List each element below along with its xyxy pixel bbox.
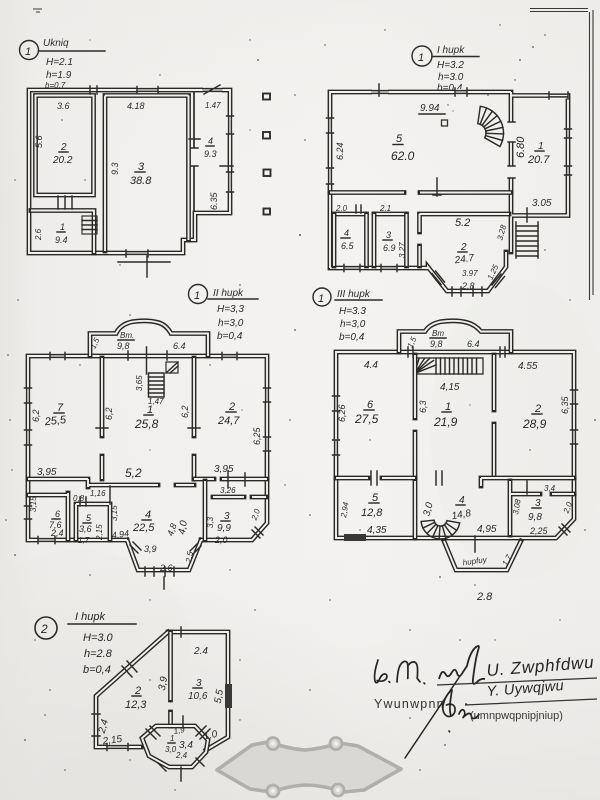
svg-text:b=0,4: b=0,4 bbox=[339, 332, 365, 343]
svg-text:6,2: 6,2 bbox=[104, 407, 114, 420]
svg-text:2,6: 2,6 bbox=[159, 563, 173, 573]
svg-text:4.55: 4.55 bbox=[518, 361, 538, 372]
svg-text:b=0,4: b=0,4 bbox=[217, 331, 243, 342]
svg-text:9.3: 9.3 bbox=[110, 162, 120, 175]
svg-text:2.1: 2.1 bbox=[379, 204, 391, 213]
svg-text:3,0: 3,0 bbox=[165, 745, 177, 754]
svg-text:H=3,3: H=3,3 bbox=[217, 304, 244, 315]
svg-text:62.0: 62.0 bbox=[391, 149, 415, 163]
svg-text:2,4: 2,4 bbox=[50, 528, 64, 538]
svg-text:2,25: 2,25 bbox=[529, 526, 549, 536]
svg-text:H=3.0: H=3.0 bbox=[83, 632, 114, 644]
svg-text:9,8: 9,8 bbox=[430, 339, 443, 349]
svg-text:6,2: 6,2 bbox=[180, 405, 190, 418]
svg-text:9.3: 9.3 bbox=[204, 149, 217, 159]
svg-text:2,4: 2,4 bbox=[175, 751, 188, 760]
svg-text:Bm: Bm bbox=[432, 329, 444, 338]
svg-text:6.80: 6.80 bbox=[515, 136, 527, 158]
svg-text:5: 5 bbox=[396, 133, 403, 145]
svg-text:9,8: 9,8 bbox=[528, 512, 542, 523]
svg-text:3.6: 3.6 bbox=[57, 101, 70, 111]
svg-text:6.35: 6.35 bbox=[209, 191, 219, 210]
svg-text:3,26: 3,26 bbox=[220, 486, 236, 495]
svg-text:(umnpwqpnipjniup): (umnpwqpnipjniup) bbox=[470, 710, 563, 722]
svg-text:7: 7 bbox=[57, 402, 64, 414]
svg-text:28,9: 28,9 bbox=[522, 417, 547, 431]
svg-text:2,15: 2,15 bbox=[95, 524, 104, 541]
svg-text:3,65: 3,65 bbox=[135, 375, 144, 391]
svg-text:I hupk: I hupk bbox=[75, 611, 105, 623]
svg-text:4: 4 bbox=[208, 136, 213, 146]
svg-text:4.18: 4.18 bbox=[127, 101, 145, 111]
svg-text:3.97: 3.97 bbox=[462, 269, 478, 278]
svg-text:b=0,4: b=0,4 bbox=[83, 664, 111, 676]
svg-text:6,25: 6,25 bbox=[252, 426, 262, 445]
svg-text:2: 2 bbox=[534, 403, 541, 415]
svg-text:h=1.9: h=1.9 bbox=[46, 70, 72, 81]
svg-text:III hupk: III hupk bbox=[337, 289, 371, 300]
svg-text:12,3: 12,3 bbox=[125, 699, 147, 711]
svg-text:3,15: 3,15 bbox=[29, 496, 38, 512]
svg-text:6.24: 6.24 bbox=[335, 142, 345, 160]
svg-text:H=2.1: H=2.1 bbox=[46, 57, 73, 68]
svg-text:38.8: 38.8 bbox=[130, 175, 152, 187]
svg-text:Ukniq: Ukniq bbox=[43, 38, 69, 49]
svg-text:1,7: 1,7 bbox=[78, 536, 90, 545]
svg-text:2: 2 bbox=[134, 685, 141, 697]
svg-text:2.0: 2.0 bbox=[335, 204, 348, 213]
svg-text:3.05: 3.05 bbox=[532, 198, 552, 209]
svg-text:1.47: 1.47 bbox=[205, 101, 221, 110]
svg-text:9.4: 9.4 bbox=[55, 235, 68, 245]
svg-text:0,8: 0,8 bbox=[73, 494, 85, 503]
svg-text:h=3,0: h=3,0 bbox=[340, 319, 366, 330]
svg-text:5: 5 bbox=[372, 492, 379, 504]
svg-text:2.4: 2.4 bbox=[193, 646, 208, 657]
svg-text:3,95: 3,95 bbox=[214, 464, 234, 475]
svg-text:10,6: 10,6 bbox=[188, 691, 208, 702]
svg-text:6: 6 bbox=[367, 399, 374, 411]
svg-text:5,2: 5,2 bbox=[125, 466, 142, 480]
svg-text:3: 3 bbox=[138, 161, 145, 173]
svg-text:22,5: 22,5 bbox=[132, 522, 155, 534]
svg-text:3,4: 3,4 bbox=[544, 484, 556, 493]
svg-text:1: 1 bbox=[60, 222, 65, 232]
svg-text:9.94: 9.94 bbox=[420, 103, 440, 114]
svg-text:3: 3 bbox=[386, 230, 391, 240]
svg-text:3,6: 3,6 bbox=[79, 524, 92, 534]
svg-text:2.6: 2.6 bbox=[34, 228, 43, 241]
svg-text:H=3.2: H=3.2 bbox=[437, 60, 464, 71]
svg-text:3,9: 3,9 bbox=[144, 544, 157, 554]
svg-text:1: 1 bbox=[25, 46, 31, 58]
svg-text:3.27: 3.27 bbox=[398, 242, 407, 258]
svg-text:27,5: 27,5 bbox=[354, 412, 379, 426]
svg-text:1: 1 bbox=[318, 293, 324, 305]
svg-text:4: 4 bbox=[344, 228, 349, 238]
svg-text:1: 1 bbox=[170, 734, 174, 743]
svg-text:6.5: 6.5 bbox=[341, 241, 355, 251]
svg-text:2.8: 2.8 bbox=[476, 591, 493, 603]
svg-text:1: 1 bbox=[194, 290, 200, 302]
svg-text:Bm.: Bm. bbox=[120, 331, 134, 340]
svg-text:3,4: 3,4 bbox=[179, 740, 193, 751]
svg-text:20.7: 20.7 bbox=[527, 154, 550, 166]
svg-text:5.2: 5.2 bbox=[455, 217, 470, 229]
svg-text:2.8: 2.8 bbox=[461, 281, 475, 291]
svg-text:4: 4 bbox=[145, 509, 151, 521]
svg-text:4,35: 4,35 bbox=[367, 525, 387, 536]
svg-text:2,0: 2,0 bbox=[214, 535, 228, 545]
svg-text:24,7: 24,7 bbox=[217, 415, 240, 427]
svg-text:3,15: 3,15 bbox=[110, 505, 119, 521]
svg-text:3,95: 3,95 bbox=[37, 467, 57, 478]
svg-text:6.4: 6.4 bbox=[467, 339, 480, 349]
svg-text:4,95: 4,95 bbox=[477, 524, 497, 535]
svg-text:1: 1 bbox=[445, 401, 451, 413]
svg-text:6: 6 bbox=[55, 509, 60, 519]
svg-text:25,5: 25,5 bbox=[43, 414, 67, 428]
svg-text:h=2.8: h=2.8 bbox=[84, 648, 113, 660]
svg-text:25,8: 25,8 bbox=[134, 417, 159, 431]
svg-text:20.2: 20.2 bbox=[52, 155, 73, 166]
svg-text:6.4: 6.4 bbox=[173, 341, 186, 351]
svg-text:2: 2 bbox=[228, 401, 235, 413]
svg-text:1: 1 bbox=[418, 52, 424, 64]
svg-text:3,3: 3,3 bbox=[206, 516, 215, 528]
svg-text:Ywunwpnn: Ywunwpnn bbox=[374, 697, 445, 711]
svg-text:1: 1 bbox=[147, 404, 153, 416]
svg-text:6.9: 6.9 bbox=[383, 243, 396, 253]
svg-text:h=3,0: h=3,0 bbox=[218, 318, 244, 329]
svg-text:6,2: 6,2 bbox=[31, 409, 41, 422]
svg-text:H=3.3: H=3.3 bbox=[339, 306, 366, 317]
svg-text:21,9: 21,9 bbox=[433, 415, 458, 429]
svg-text:4.4: 4.4 bbox=[364, 360, 378, 371]
svg-text:12,8: 12,8 bbox=[361, 507, 383, 519]
svg-text:6,26: 6,26 bbox=[337, 404, 347, 422]
svg-text:9,8: 9,8 bbox=[117, 341, 130, 351]
svg-text:1,16: 1,16 bbox=[90, 489, 106, 498]
svg-text:4,15: 4,15 bbox=[440, 382, 460, 393]
svg-text:2: 2 bbox=[40, 622, 48, 636]
svg-text:6,35: 6,35 bbox=[560, 395, 570, 414]
svg-text:6,3: 6,3 bbox=[418, 400, 428, 413]
svg-text:9,9: 9,9 bbox=[217, 523, 231, 534]
svg-text:I hupk: I hupk bbox=[437, 45, 465, 56]
svg-text:h=3.0: h=3.0 bbox=[438, 72, 464, 83]
svg-text:II hupk: II hupk bbox=[213, 288, 244, 299]
svg-text:5.6: 5.6 bbox=[34, 135, 44, 148]
